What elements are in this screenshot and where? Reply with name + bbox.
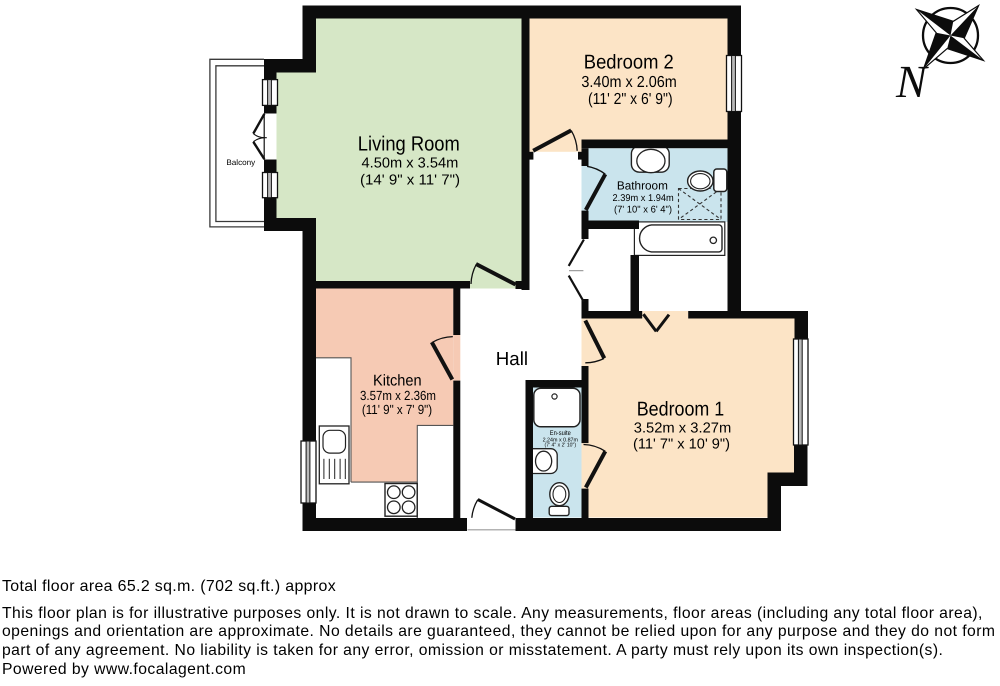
- svg-text:N: N: [895, 56, 929, 107]
- svg-text:(7' 4" x 2' 10"): (7' 4" x 2' 10"): [545, 442, 577, 449]
- svg-text:4.50m x 3.54m: 4.50m x 3.54m: [362, 156, 459, 172]
- svg-text:(11' 9" x 7' 9"): (11' 9" x 7' 9"): [362, 402, 432, 417]
- svg-text:3.52m x 3.27m: 3.52m x 3.27m: [634, 421, 732, 437]
- svg-text:Bedroom 2: Bedroom 2: [584, 52, 674, 74]
- svg-text:(14' 9" x 11' 7"): (14' 9" x 11' 7"): [360, 173, 460, 189]
- svg-text:Bedroom 1: Bedroom 1: [637, 399, 725, 421]
- svg-text:Living Room: Living Room: [358, 133, 460, 156]
- svg-text:En-suite: En-suite: [550, 430, 571, 437]
- svg-text:2.39m x 1.94m: 2.39m x 1.94m: [613, 193, 674, 204]
- svg-text:Hall: Hall: [496, 349, 528, 370]
- svg-text:(7' 10" x 6' 4"): (7' 10" x 6' 4"): [614, 204, 672, 215]
- svg-text:3.40m x 2.06m: 3.40m x 2.06m: [581, 74, 676, 91]
- svg-text:(11' 2" x 6' 9"): (11' 2" x 6' 9"): [588, 91, 673, 108]
- svg-text:Balcony: Balcony: [226, 158, 255, 167]
- svg-text:Bathroom: Bathroom: [617, 178, 668, 192]
- svg-text:(11' 7" x 10' 9"): (11' 7" x 10' 9"): [633, 437, 730, 453]
- svg-text:3.57m x 2.36m: 3.57m x 2.36m: [360, 388, 436, 403]
